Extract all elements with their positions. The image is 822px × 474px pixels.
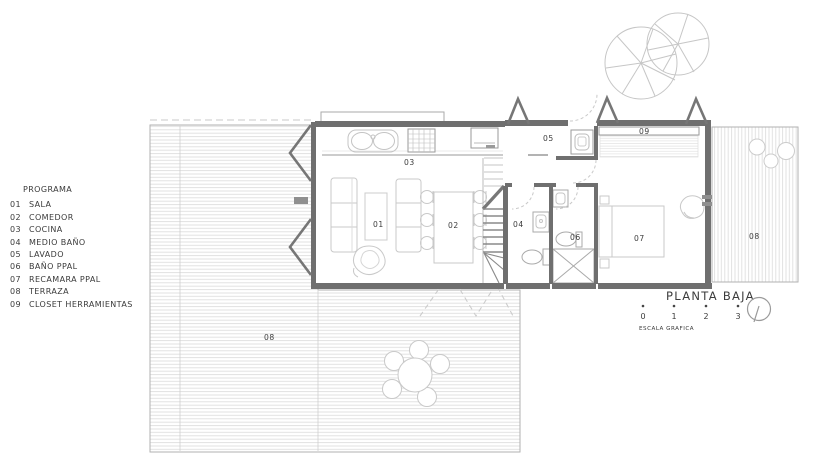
entry-door-arc: [570, 94, 597, 121]
room-label-medio-bano: 04: [513, 220, 524, 229]
legend-item-label: LAVADO: [29, 250, 64, 259]
room-label-recamara: 07: [634, 234, 645, 243]
nightstand: [600, 196, 609, 204]
legend-title: PROGRAMA: [23, 184, 133, 196]
scale-tick-0: 0: [640, 312, 645, 321]
tree-icon: [605, 27, 677, 99]
legend-item: 01SALA: [10, 199, 133, 211]
bed-icon: [599, 206, 664, 257]
legend-item: 02COMEDOR: [10, 212, 133, 224]
nightstand: [600, 259, 609, 268]
dining-chair-icon: [474, 237, 487, 250]
dining-chair-icon: [421, 237, 434, 250]
room-label-cocina: 03: [404, 158, 415, 167]
legend-item-number: 06: [10, 261, 29, 273]
north-indicator-icon: [748, 298, 771, 323]
coffee-table: [365, 193, 387, 240]
legend-item-number: 09: [10, 299, 29, 311]
room-label-lavado: 05: [543, 134, 554, 143]
bathroom-sink-icon: [533, 212, 549, 232]
room-label-sala: 01: [373, 220, 384, 229]
fridge-icon: [471, 128, 498, 148]
legend-item-label: MEDIO BAÑO: [29, 238, 86, 247]
window-mark: [294, 197, 308, 204]
legend-item-label: COCINA: [29, 225, 63, 234]
room-label-terraza-side: 08: [749, 232, 760, 241]
washing-machine-icon: [571, 130, 593, 154]
legend-item: 05LAVADO: [10, 249, 133, 261]
legend-item-number: 02: [10, 212, 29, 224]
gable-triangle: [597, 98, 618, 123]
legend-item: 07RECAMARA PPAL: [10, 274, 133, 286]
legend-item: 08TERRAZA: [10, 286, 133, 298]
legend-item-number: 08: [10, 286, 29, 298]
legend-item: 09CLOSET HERRAMIENTAS: [10, 299, 133, 311]
sofa: [396, 179, 421, 252]
legend-item: 03COCINA: [10, 224, 133, 236]
legend-item-number: 04: [10, 237, 29, 249]
dining-chair-icon: [421, 214, 434, 227]
legend: PROGRAMA 01SALA 02COMEDOR 03COCINA 04MED…: [10, 184, 133, 311]
scale-tick-3: 3: [735, 312, 740, 321]
legend-item: 06BAÑO PPAL: [10, 261, 133, 273]
room-label-bano-ppal: 06: [570, 233, 581, 242]
legend-item-number: 01: [10, 199, 29, 211]
dining-chair-icon: [474, 191, 487, 204]
legend-item-number: 05: [10, 249, 29, 261]
room-label-closet: 09: [639, 127, 650, 136]
window-mark: [702, 195, 712, 199]
sofa: [331, 178, 357, 252]
tree-icon: [647, 13, 709, 75]
bedroom-chair-icon: [680, 196, 704, 219]
plan-title: PLANTA BAJA: [666, 289, 755, 303]
legend-item-label: RECAMARA PPAL: [29, 275, 101, 284]
legend-item-number: 07: [10, 274, 29, 286]
room-label-comedor: 02: [448, 221, 459, 230]
legend-item-label: COMEDOR: [29, 213, 74, 222]
stove-icon: [408, 129, 435, 152]
bathroom-sink-icon: [553, 190, 568, 207]
window-mark: [702, 202, 712, 206]
dining-chair-icon: [421, 191, 434, 204]
toilet-icon: [522, 249, 550, 265]
floor-plan-page: 01 02 03 04 05 06 07 08 08 09 PLANTA BAJ…: [0, 0, 822, 474]
legend-item-label: BAÑO PPAL: [29, 262, 77, 271]
legend-item: 04MEDIO BAÑO: [10, 237, 133, 249]
room-label-terraza-main: 08: [264, 333, 275, 342]
graphic-scale: 0 1 2 3 ESCALA GRAFICA: [639, 305, 741, 332]
scale-tick-2: 2: [703, 312, 708, 321]
legend-item-number: 03: [10, 224, 29, 236]
legend-item-label: TERRAZA: [29, 287, 69, 296]
legend-item-label: SALA: [29, 200, 51, 209]
scale-tick-1: 1: [671, 312, 676, 321]
legend-item-label: CLOSET HERRAMIENTAS: [29, 300, 133, 309]
scale-caption: ESCALA GRAFICA: [639, 326, 694, 332]
